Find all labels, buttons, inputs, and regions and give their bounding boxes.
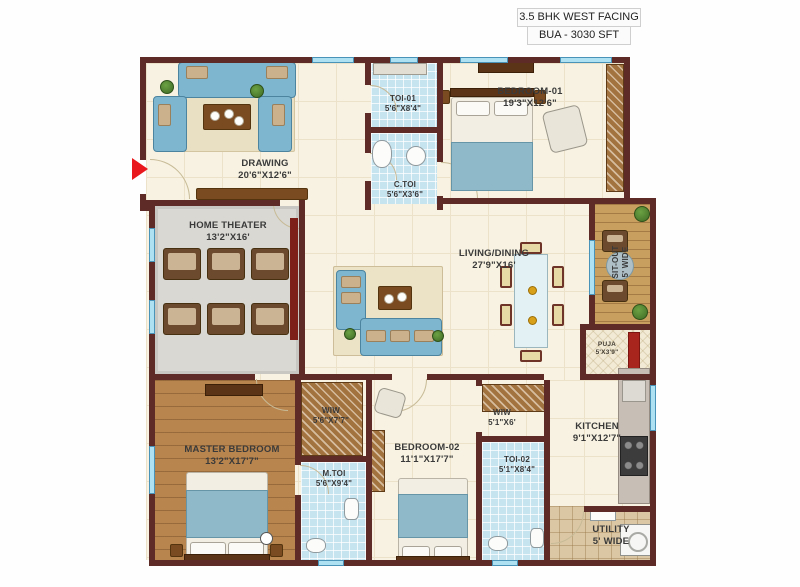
recliner-seat: [251, 303, 289, 335]
wall: [476, 436, 550, 442]
plant: [632, 304, 648, 320]
room-label-home-theater: HOME THEATER 13'2"X16': [168, 220, 288, 244]
room-dims: 5'1"X6': [472, 418, 532, 428]
room-name: HOME THEATER: [168, 220, 288, 232]
window: [318, 560, 344, 566]
wall: [437, 198, 590, 204]
mtoi-sink: [344, 498, 359, 520]
sliding-door-window: [589, 240, 595, 295]
room-label-drawing: DRAWING 20'6"X12'6": [205, 158, 325, 182]
room-dims: 20'6"X12'6": [205, 170, 325, 182]
room-dims: 5' WIDE: [621, 217, 631, 307]
wall: [589, 295, 595, 330]
wall: [290, 374, 392, 380]
room-dims: 5'1"X8'4": [482, 465, 552, 475]
room-name: KITCHEN: [552, 421, 642, 433]
wall: [586, 324, 654, 330]
plant: [634, 206, 650, 222]
room-dims: 5' WIDE: [566, 536, 656, 548]
plant: [432, 330, 444, 342]
room-dims: 13'2"X17'7": [162, 456, 302, 468]
master-dresser: [205, 384, 263, 396]
room-name: M.TOI: [299, 469, 369, 479]
room-name: BEDROOM-01: [470, 86, 590, 98]
room-name: C.TOI: [369, 180, 441, 190]
room-label-c-toi: C.TOI 5'6"X3'6": [369, 180, 441, 200]
wall: [584, 506, 656, 512]
window: [560, 57, 612, 63]
sofa-cushion: [366, 330, 386, 342]
wall: [140, 57, 146, 160]
window: [149, 446, 155, 494]
toi01-counter: [373, 63, 427, 75]
entrance-arrow-icon: [132, 158, 148, 180]
room-label-wiw-bed02: WIW 5'1"X6': [472, 408, 532, 428]
room-label-bedroom-02: BEDROOM-02 11'1"X17'7": [367, 442, 487, 466]
room-label-kitchen: KITCHEN 9'1"X12'7": [552, 421, 642, 445]
sofa-cushion: [186, 66, 208, 79]
room-label-utility: UTILITY 5' WIDE: [566, 524, 656, 548]
room-dims: 5'6"X9'4": [299, 479, 369, 489]
plant: [344, 328, 356, 340]
room-dims: 5'6"X7'7": [296, 416, 366, 426]
console-table: [196, 188, 308, 200]
room-label-toi-02: TOI-02 5'1"X8'4": [482, 455, 552, 475]
window: [650, 385, 656, 431]
sofa-cushion: [414, 330, 434, 342]
room-label-wiw-master: WIW 5'6"X7'7": [296, 406, 366, 426]
room-label-puja: PUJA 5'X3'9": [584, 341, 630, 357]
room-dims: 13'2"X16': [168, 232, 288, 244]
room-label-m-toi: M.TOI 5'6"X9'4": [299, 469, 369, 489]
mtoi-toilet: [306, 538, 326, 553]
room-label-bedroom-01: BEDROOM-01 19'3"X12'6": [470, 86, 590, 110]
theater-screen: [290, 218, 298, 340]
dining-chair: [552, 304, 564, 326]
room-dims: 5'X3'9": [584, 349, 630, 357]
room-name: PUJA: [584, 341, 630, 349]
wall: [544, 506, 550, 512]
wall: [295, 456, 372, 462]
room-label-master-bedroom: MASTER BEDROOM 13'2"X17'7": [162, 444, 302, 468]
plan-type-label: 3.5 BHK WEST FACING: [517, 8, 641, 27]
wall: [299, 200, 305, 380]
living-coffee-table: [378, 286, 412, 310]
toi02-sink: [530, 528, 544, 548]
room-name: BEDROOM-02: [367, 442, 487, 454]
master-blanket: [186, 490, 268, 538]
recliner-seat: [207, 303, 245, 335]
ctoi-basin: [406, 146, 426, 166]
window: [390, 57, 418, 63]
bedroom02-blanket: [398, 494, 468, 538]
recliner-seat: [163, 248, 201, 280]
sofa-cushion: [341, 292, 361, 304]
room-dims: 5'6"X8'4": [367, 104, 439, 114]
wall: [585, 198, 656, 204]
wall: [365, 57, 371, 85]
window: [149, 300, 155, 334]
wall: [365, 113, 371, 153]
wall: [140, 200, 280, 206]
room-dims: 11'1"X17'7": [367, 454, 487, 466]
bedroom01-blanket: [451, 142, 533, 191]
window: [312, 57, 354, 63]
toi02-toilet: [488, 536, 508, 551]
room-name: DRAWING: [205, 158, 325, 170]
plant: [250, 84, 264, 98]
room-name: TOI-01: [367, 94, 439, 104]
wall: [149, 374, 255, 380]
room-name: TOI-02: [482, 455, 552, 465]
wall: [140, 57, 630, 63]
plant: [160, 80, 174, 94]
sofa-cushion: [266, 66, 288, 79]
room-name: UTILITY: [566, 524, 656, 536]
wall: [427, 374, 544, 380]
sofa-cushion: [341, 276, 361, 288]
room-name: SIT-OUT: [611, 217, 621, 307]
window: [149, 228, 155, 262]
window: [492, 560, 518, 566]
sofa-cushion: [390, 330, 410, 342]
recliner-seat: [207, 248, 245, 280]
recliner-seat: [251, 248, 289, 280]
drawing-coffee-table: [203, 104, 251, 130]
room-name: MASTER BEDROOM: [162, 444, 302, 456]
built-up-area-label: BUA - 3030 SFT: [527, 26, 631, 45]
bedroom01-wardrobe: [606, 64, 624, 192]
sofa-cushion: [158, 104, 171, 126]
ctoi-toilet: [372, 140, 392, 168]
sofa-cushion: [272, 104, 285, 126]
dining-chair: [500, 304, 512, 326]
wall: [149, 560, 656, 566]
recliner-seat: [163, 303, 201, 335]
wall: [589, 198, 595, 240]
wall: [624, 57, 630, 204]
kitchen-sink: [622, 380, 646, 402]
room-dims: 19'3"X12'6": [470, 98, 590, 110]
room-dims: 27'9"X16': [434, 260, 554, 272]
wall: [295, 495, 301, 560]
room-name: WIW: [472, 408, 532, 418]
room-name: LIVING/DINING: [434, 248, 554, 260]
dining-chair: [520, 350, 542, 362]
room-label-living-dining: LIVING/DINING 27'9"X16': [434, 248, 554, 272]
room-dims: 5'6"X3'6": [369, 190, 441, 200]
window: [460, 57, 508, 63]
bedside-table: [270, 544, 283, 557]
room-label-toi-01: TOI-01 5'6"X8'4": [367, 94, 439, 114]
wall: [476, 380, 482, 386]
wall: [580, 374, 656, 380]
floor-plan-canvas: 3.5 BHK WEST FACING BUA - 3030 SFT: [0, 0, 800, 587]
room-dims: 9'1"X12'7": [552, 433, 642, 445]
wall: [365, 127, 443, 133]
room-name: WIW: [296, 406, 366, 416]
room-label-sit-out: SIT-OUT 5' WIDE: [611, 217, 631, 307]
football: [260, 532, 273, 545]
bedside-table: [170, 544, 183, 557]
